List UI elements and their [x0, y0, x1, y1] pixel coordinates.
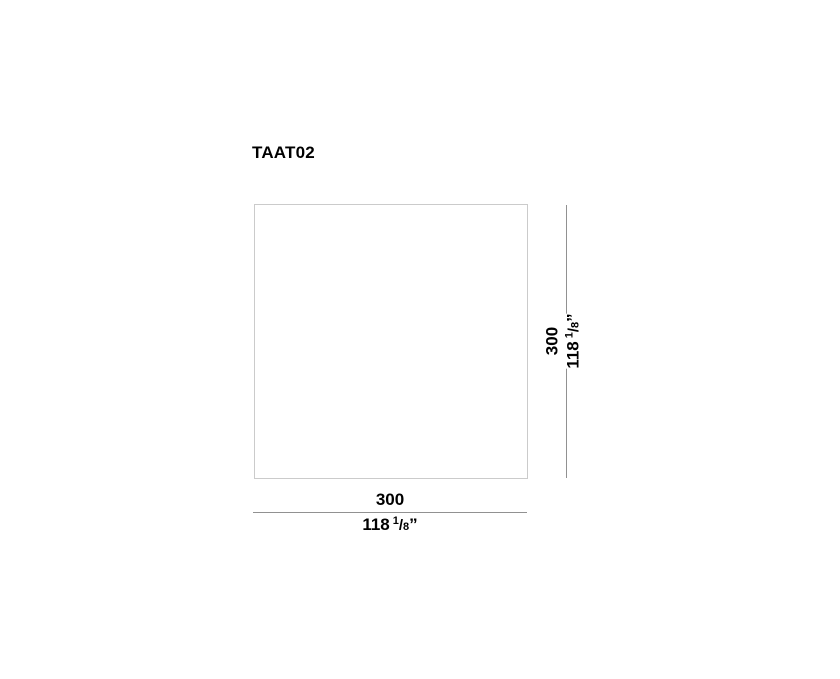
width-inch-mark: ” [409, 515, 418, 534]
width-mm-label: 300 [253, 491, 527, 509]
width-inches-label: 1181/8” [253, 515, 527, 537]
width-dimension-line [253, 512, 527, 513]
height-mm-label: 300 [542, 313, 563, 368]
height-dimension-labels: 300 1181/8” [542, 313, 587, 368]
width-fraction-denominator: 8 [403, 521, 409, 533]
dimension-drawing: TAAT02 300 1181/8” 300 1181/8” [0, 0, 840, 679]
width-fraction-numerator: 1 [393, 515, 399, 527]
height-inches-label: 1181/8” [563, 313, 587, 368]
tabletop-outline-square [254, 204, 528, 479]
drawing-title: TAAT02 [252, 143, 315, 163]
height-fraction-denominator: 8 [570, 322, 582, 328]
height-inch-mark: ” [564, 313, 583, 322]
height-inches-whole: 118 [564, 341, 583, 368]
height-fraction-numerator: 1 [564, 332, 576, 338]
width-inches-whole: 118 [362, 515, 389, 534]
